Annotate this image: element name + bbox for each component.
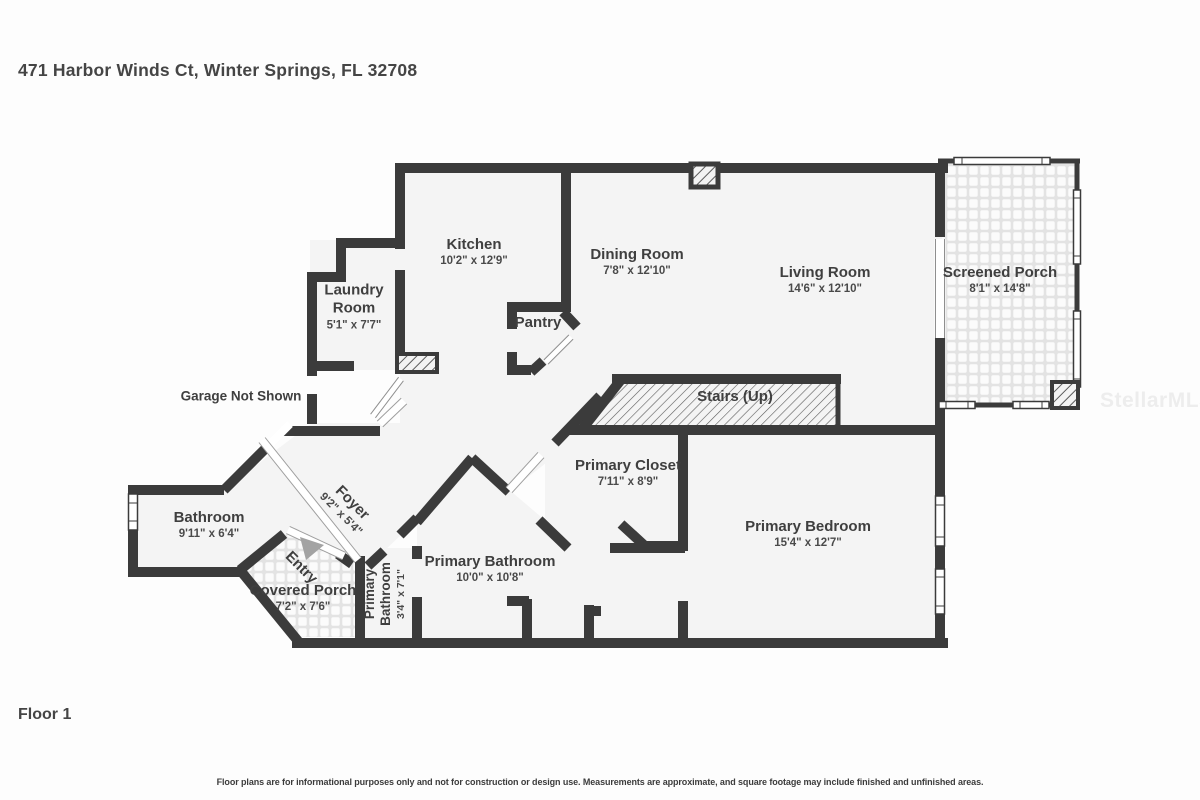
room-name: Primary Closet (575, 457, 681, 475)
fireplace-hatch (691, 164, 718, 187)
room-name: Primary Bathroom (425, 553, 556, 571)
room-dims: 15'4" x 12'7" (745, 536, 871, 550)
porch-post-hatch (1052, 382, 1078, 408)
room-dims: 7'2" x 7'6" (250, 600, 357, 614)
room-name: Primary Bedroom (745, 518, 871, 536)
floor-label: Floor 1 (18, 706, 71, 724)
room-label-kitchen: Kitchen 10'2" x 12'9" (440, 236, 508, 268)
room-name: Pantry (515, 314, 562, 332)
room-dims: 8'1" x 14'8" (943, 282, 1057, 296)
garage-note: Garage Not Shown (181, 389, 302, 404)
room-dims: 9'11" x 6'4" (174, 527, 245, 541)
room-label-dining: Dining Room 7'8" x 12'10" (590, 246, 683, 278)
room-name: Laundry Room (308, 282, 400, 319)
room-name: Primary Bathroom (362, 551, 395, 637)
room-label-screened-porch: Screened Porch 8'1" x 14'8" (943, 264, 1057, 296)
room-name: Living Room (780, 264, 871, 282)
page-title: 471 Harbor Winds Ct, Winter Springs, FL … (18, 60, 417, 81)
room-label-pantry: Pantry (515, 314, 562, 332)
garage-door-hatch (397, 354, 437, 372)
room-label-bathroom: Bathroom 9'11" x 6'4" (174, 509, 245, 541)
room-name: Kitchen (440, 236, 508, 254)
disclaimer-text: Floor plans are for informational purpos… (0, 777, 1200, 787)
room-name: Dining Room (590, 246, 683, 264)
room-label-stairs: Stairs (Up) (697, 388, 773, 406)
room-label-covered-porch: Covered Porch 7'2" x 7'6" (250, 582, 357, 614)
room-name: Covered Porch (250, 582, 357, 600)
room-label-primary-bathroom: Primary Bathroom 10'0" x 10'8" (425, 553, 556, 585)
room-dims: 10'2" x 12'9" (440, 254, 508, 268)
watermark: StellarMLS (1100, 389, 1200, 413)
room-label-primary-closet: Primary Closet 7'11" x 8'9" (575, 457, 681, 489)
room-dims: 10'0" x 10'8" (425, 571, 556, 585)
room-label-living: Living Room 14'6" x 12'10" (780, 264, 871, 296)
room-label-primary-bedroom: Primary Bedroom 15'4" x 12'7" (745, 518, 871, 550)
room-name: Stairs (Up) (697, 388, 773, 406)
room-name: Screened Porch (943, 264, 1057, 282)
room-label-laundry: Laundry Room 5'1" x 7'7" (308, 282, 400, 333)
room-dims: 14'6" x 12'10" (780, 282, 871, 296)
room-label-primary-bathroom-small: Primary Bathroom 3'4" x 7'1" (362, 551, 408, 637)
floor-plan-page: 471 Harbor Winds Ct, Winter Springs, FL … (0, 0, 1200, 800)
room-dims: 7'8" x 12'10" (590, 264, 683, 278)
room-name: Bathroom (174, 509, 245, 527)
room-dims: 3'4" x 7'1" (395, 551, 408, 637)
room-dims: 7'11" x 8'9" (575, 475, 681, 489)
room-dims: 5'1" x 7'7" (308, 318, 400, 332)
